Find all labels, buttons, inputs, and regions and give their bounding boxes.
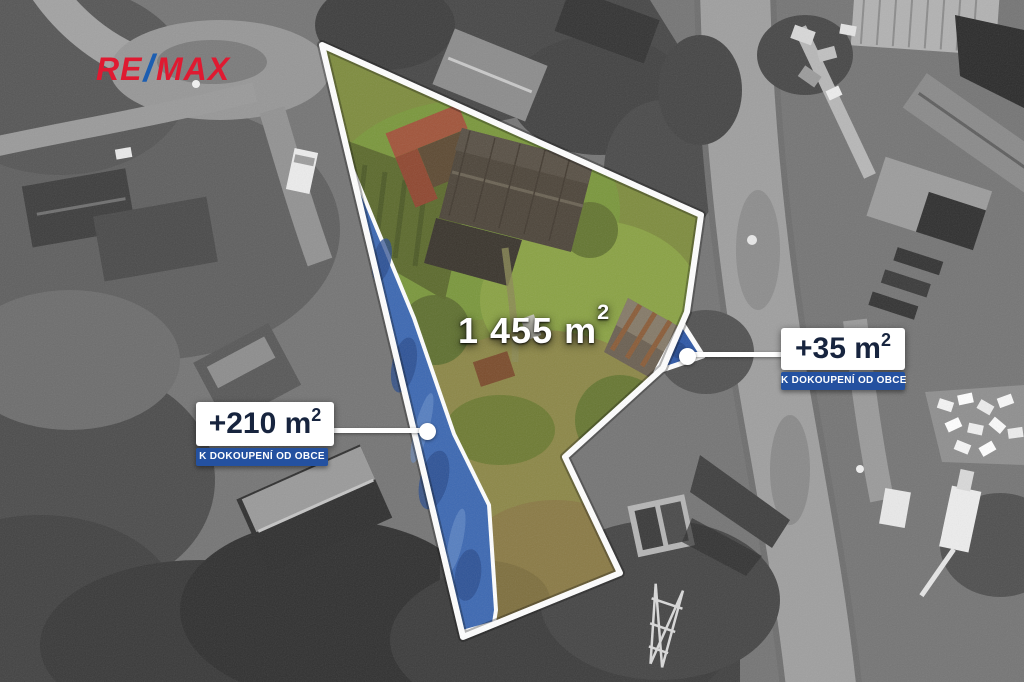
extra-plot-right-area-value: +35 m (795, 332, 881, 366)
logo-re: RE (96, 51, 142, 87)
extra-plot-left-area-box: +210 m2 (196, 402, 334, 446)
connector-line-right (690, 352, 783, 357)
logo-max: MAX (156, 51, 230, 87)
main-area-sup: 2 (597, 299, 610, 324)
extra-plot-left-badge: K DOKOUPENÍ OD OBCE (196, 448, 328, 466)
connector-line-left (332, 428, 422, 433)
connector-dot-right (679, 348, 696, 365)
extra-plot-right-area-box: +35 m2 (781, 328, 905, 370)
extra-plot-left-area-value: +210 m (209, 407, 312, 441)
extra-plot-tag-left: +210 m2 K DOKOUPENÍ OD OBCE (196, 402, 334, 466)
connector-dot-left (419, 423, 436, 440)
remax-logo: RE/MAX (96, 46, 230, 89)
main-area-value: 1 455 m (458, 310, 597, 351)
extra-plot-tag-right: +35 m2 K DOKOUPENÍ OD OBCE (781, 328, 905, 390)
aerial-photo-stage: RE/MAX 1 455 m2 +210 m2 K DOKOUPENÍ OD O… (0, 0, 1024, 682)
extra-plot-right-area-sup: 2 (881, 330, 891, 351)
extra-plot-right-badge: K DOKOUPENÍ OD OBCE (781, 372, 905, 390)
logo-slash: / (143, 47, 155, 89)
extra-plot-left-area-sup: 2 (311, 405, 321, 426)
main-area-label: 1 455 m2 (458, 310, 610, 352)
